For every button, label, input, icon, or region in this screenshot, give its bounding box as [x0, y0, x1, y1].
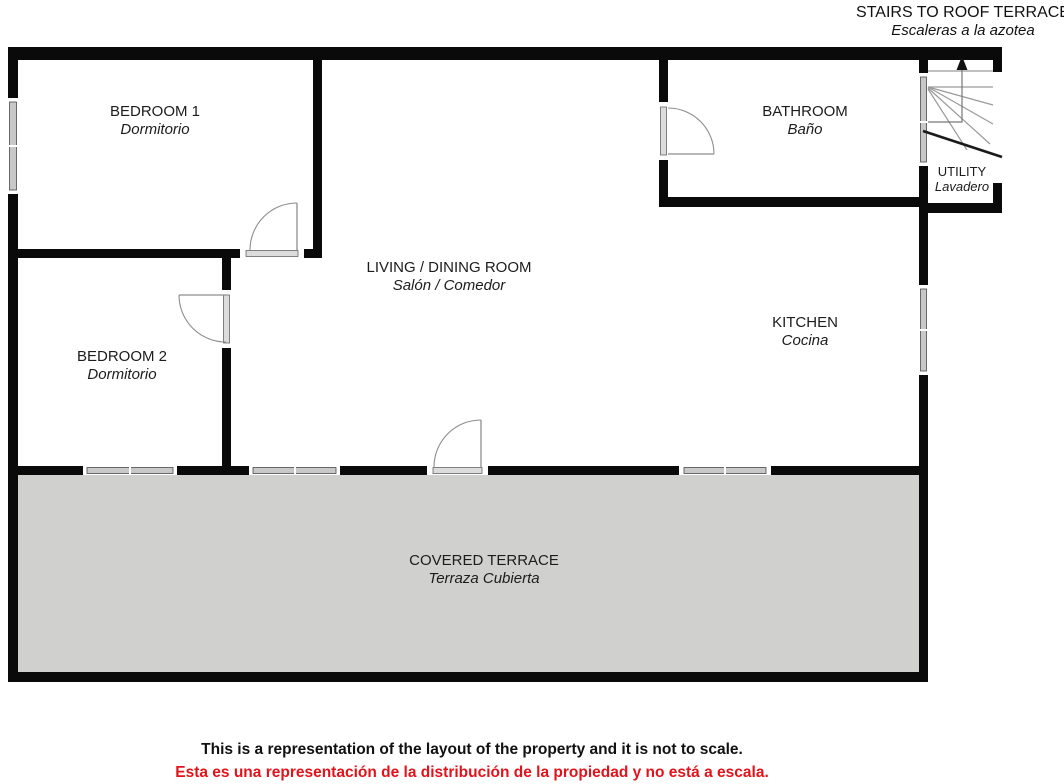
- room-name-en: UTILITY: [935, 165, 989, 180]
- room-name-en: LIVING / DINING ROOM: [366, 259, 531, 277]
- door-terrace: [427, 420, 488, 475]
- room-name-es: Cocina: [772, 332, 838, 350]
- room-label-covered-terrace: COVERED TERRACE Terraza Cubierta: [409, 552, 559, 587]
- stairs-header: STAIRS TO ROOF TERRACE Escaleras a la az…: [856, 4, 1064, 39]
- room-label-bedroom-2: BEDROOM 2 Dormitorio: [77, 348, 167, 383]
- door-bedroom2: [179, 290, 231, 348]
- window-stairwell: [919, 73, 928, 166]
- window-bedroom1: [8, 98, 18, 194]
- room-name-es: Baño: [762, 121, 848, 139]
- room-name-es: Lavadero: [935, 180, 989, 195]
- disclaimer: This is a representation of the layout o…: [175, 738, 769, 784]
- room-name-en: BEDROOM 1: [110, 103, 200, 121]
- window-bedroom2: [83, 466, 177, 475]
- door-bedroom1: [240, 203, 304, 258]
- window-kitchen-terrace: [679, 466, 771, 475]
- room-name-en: KITCHEN: [772, 314, 838, 332]
- room-label-bedroom-1: BEDROOM 1 Dormitorio: [110, 103, 200, 138]
- disclaimer-en: This is a representation of the layout o…: [175, 738, 769, 761]
- door-bathroom: [659, 102, 714, 160]
- stairs-to-roof: [923, 56, 1002, 157]
- room-label-living-dining: LIVING / DINING ROOM Salón / Comedor: [366, 259, 531, 294]
- stairs-header-es: Escaleras a la azotea: [856, 22, 1064, 40]
- room-name-en: COVERED TERRACE: [409, 552, 559, 570]
- room-name-es: Dormitorio: [110, 121, 200, 139]
- disclaimer-es: Esta es una representación de la distrib…: [175, 761, 769, 784]
- stairs-header-en: STAIRS TO ROOF TERRACE: [856, 4, 1064, 22]
- room-name-es: Terraza Cubierta: [409, 570, 559, 588]
- room-name-es: Salón / Comedor: [366, 277, 531, 295]
- room-label-kitchen: KITCHEN Cocina: [772, 314, 838, 349]
- floor-plan-page: STAIRS TO ROOF TERRACE Escaleras a la az…: [0, 0, 1064, 784]
- room-name-en: BEDROOM 2: [77, 348, 167, 366]
- room-label-utility: UTILITY Lavadero: [935, 165, 989, 194]
- room-name-es: Dormitorio: [77, 366, 167, 384]
- room-label-bathroom: BATHROOM Baño: [762, 103, 848, 138]
- window-living: [249, 466, 340, 475]
- window-kitchen-side: [919, 285, 928, 375]
- room-name-en: BATHROOM: [762, 103, 848, 121]
